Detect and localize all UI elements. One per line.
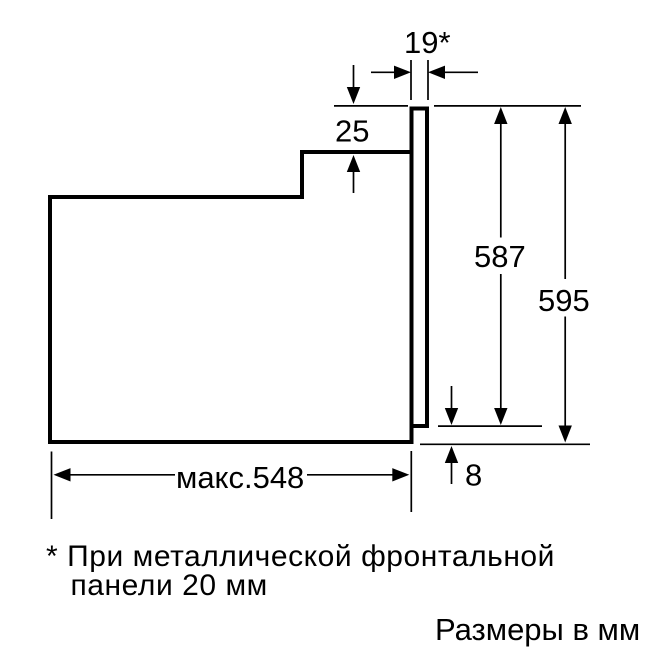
- svg-text:25: 25: [335, 114, 369, 149]
- svg-text:макс.548: макс.548: [176, 460, 304, 495]
- svg-text:8: 8: [465, 458, 482, 493]
- svg-text:19*: 19*: [404, 25, 451, 60]
- svg-text:панели 20 мм: панели 20 мм: [71, 569, 268, 602]
- svg-text:595: 595: [538, 283, 590, 318]
- svg-text:587: 587: [474, 239, 526, 274]
- svg-text:Размеры в мм: Размеры в мм: [435, 612, 640, 647]
